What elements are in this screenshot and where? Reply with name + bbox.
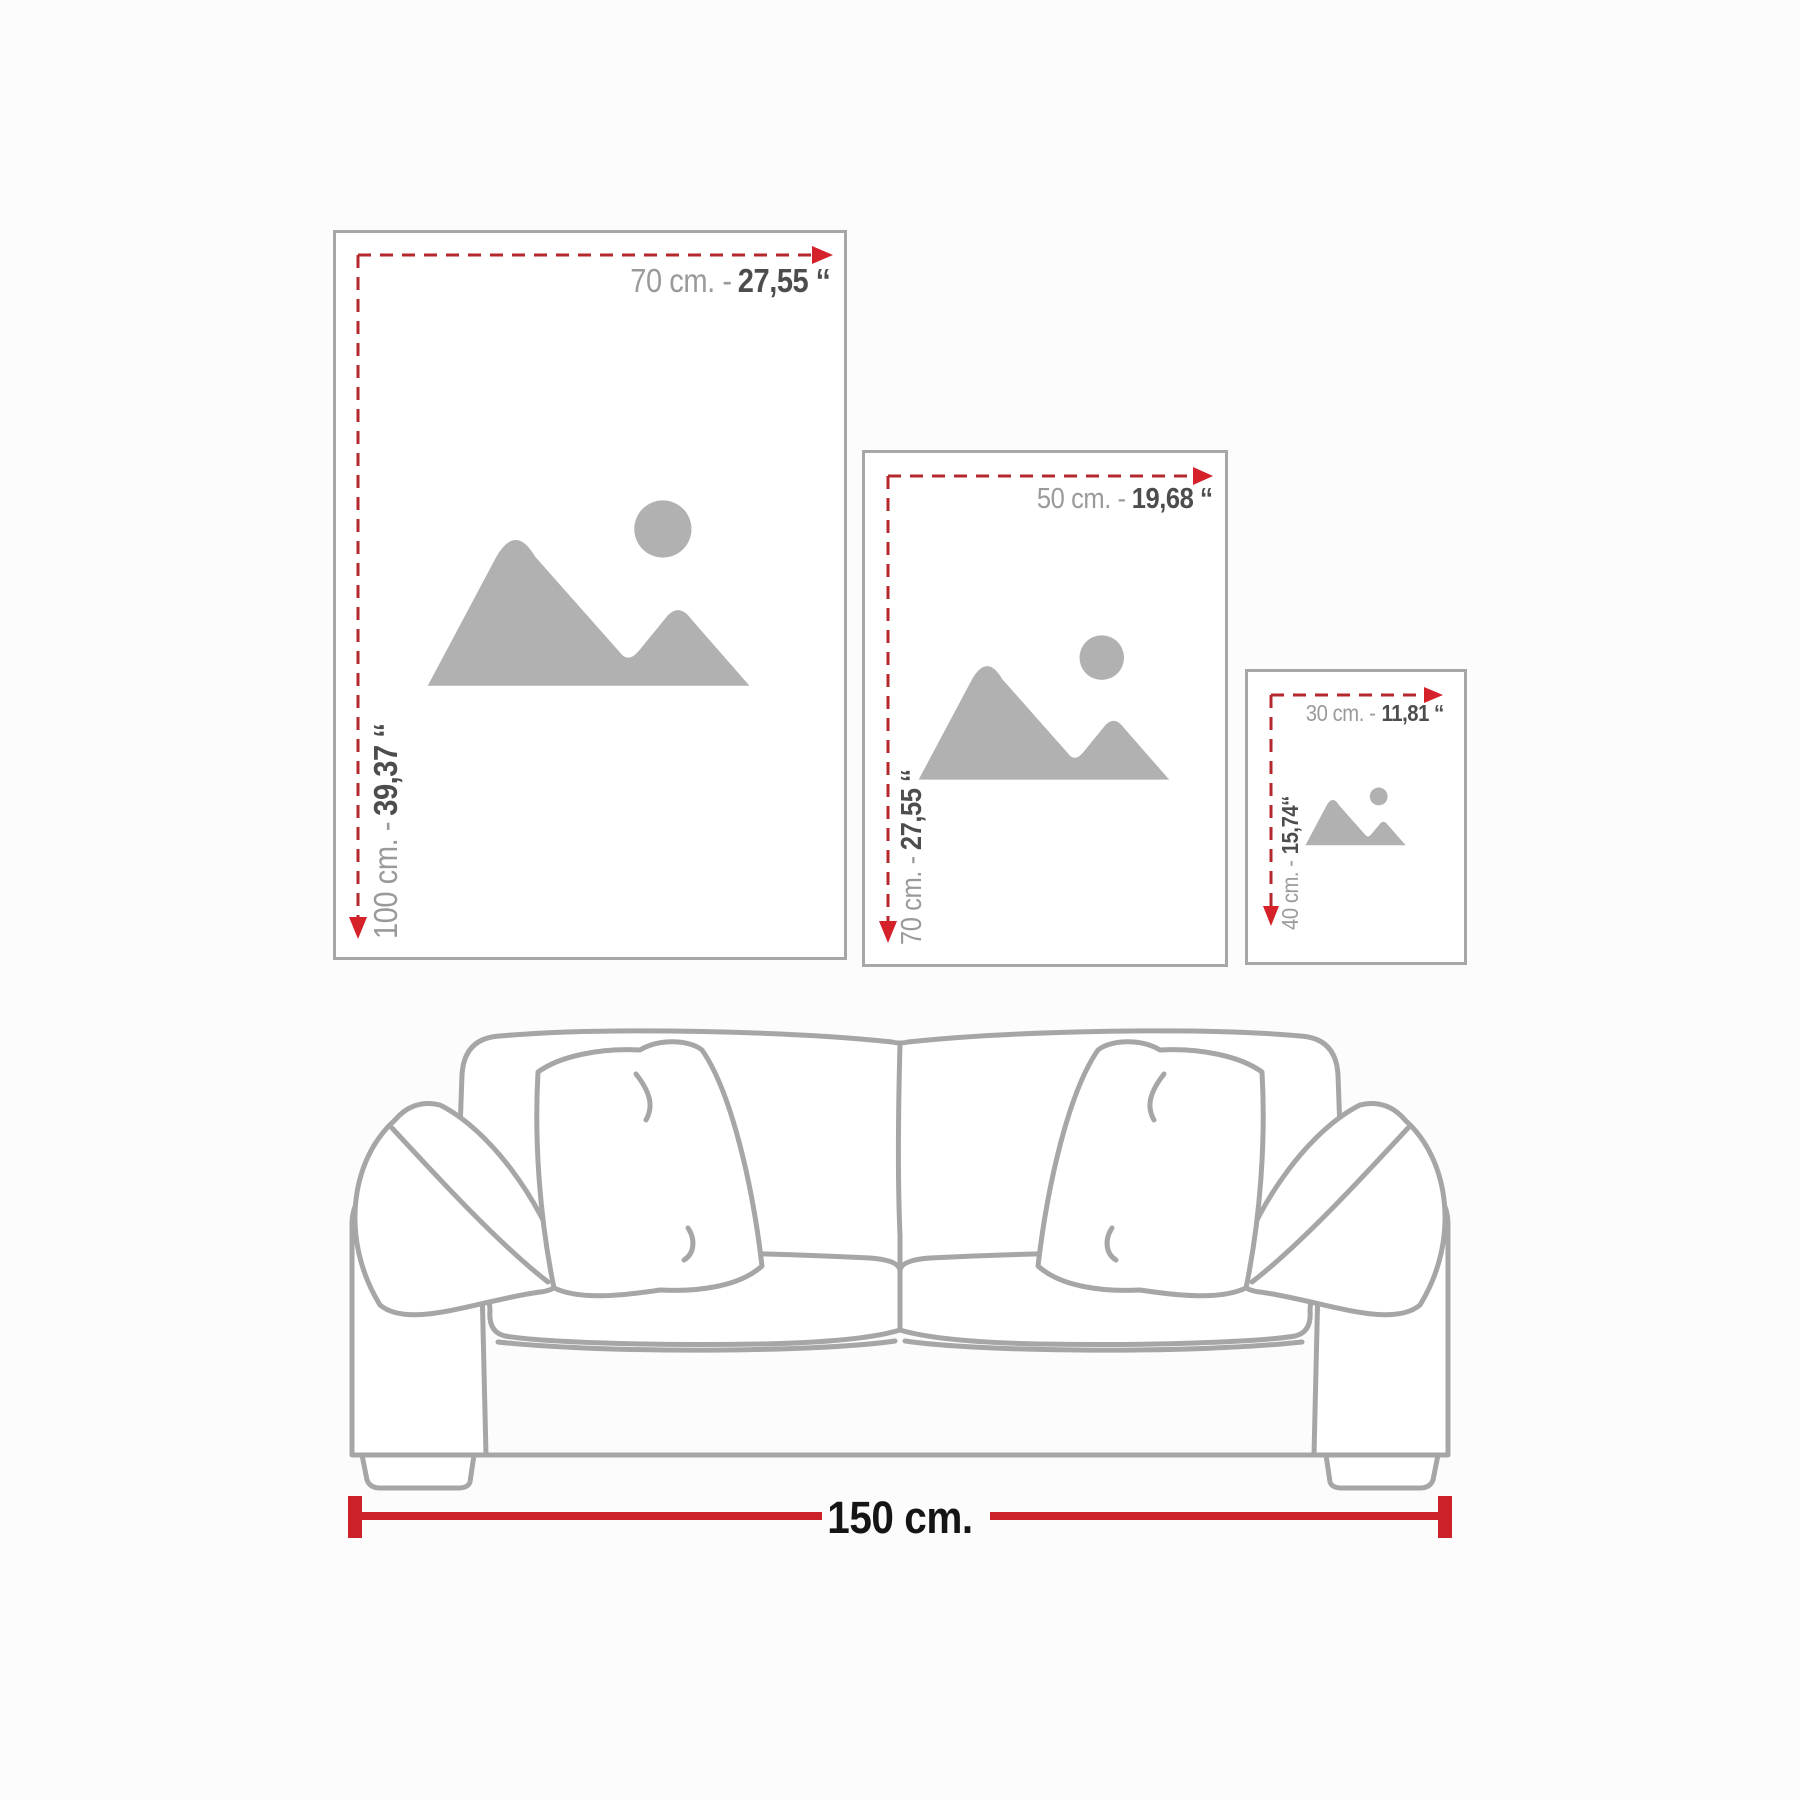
arrowhead-down-icon — [349, 917, 367, 939]
sofa-width-label: 150 cm. — [396, 1492, 1404, 1544]
measure-right-cap — [1438, 1496, 1452, 1538]
frame-size-large: 70 cm. -27,55 ‘‘ 100 cm. -39,37 ‘‘ — [333, 230, 847, 960]
sofa-foot — [362, 1455, 474, 1488]
height-cm-value: 100 cm. - — [367, 822, 404, 939]
height-inch-value: 15,74‘‘ — [1277, 796, 1303, 854]
height-cm-value: 40 cm. - — [1277, 860, 1303, 930]
width-cm-value: 50 cm. - — [1037, 483, 1126, 515]
height-inch-value: 39,37 ‘‘ — [367, 723, 404, 815]
frame-size-medium: 50 cm. -19,68 ‘‘ 70 cm. -27,55 ‘‘ — [862, 450, 1228, 967]
width-cm-value: 70 cm. - — [630, 262, 731, 299]
width-inch-value: 11,81 ‘‘ — [1382, 700, 1444, 726]
image-placeholder-icon — [1305, 787, 1408, 847]
size-guide-canvas: 70 cm. -27,55 ‘‘ 100 cm. -39,37 ‘‘ 50 cm… — [0, 0, 1800, 1800]
sofa-illustration — [350, 1030, 1450, 1490]
width-inch-value: 19,68 ‘‘ — [1131, 483, 1212, 515]
width-cm-value: 30 cm. - — [1306, 700, 1376, 726]
height-label: 100 cm. -39,37 ‘‘ — [369, 723, 402, 939]
arrowhead-down-icon — [879, 921, 897, 943]
width-inch-value: 27,55 ‘‘ — [738, 262, 830, 299]
image-placeholder-icon — [425, 499, 755, 692]
frame-size-small: 30 cm. -11,81 ‘‘ 40 cm. -15,74‘‘ — [1245, 669, 1467, 965]
width-label: 50 cm. -19,68 ‘‘ — [1037, 485, 1212, 514]
width-label: 70 cm. -27,55 ‘‘ — [630, 264, 830, 297]
image-placeholder-icon — [917, 634, 1174, 784]
width-label: 30 cm. -11,81 ‘‘ — [1306, 702, 1444, 725]
height-label: 70 cm. -27,55 ‘‘ — [898, 770, 927, 945]
height-label: 40 cm. -15,74‘‘ — [1279, 796, 1302, 930]
height-cm-value: 70 cm. - — [896, 856, 928, 945]
sofa-back-split — [899, 1044, 901, 1262]
